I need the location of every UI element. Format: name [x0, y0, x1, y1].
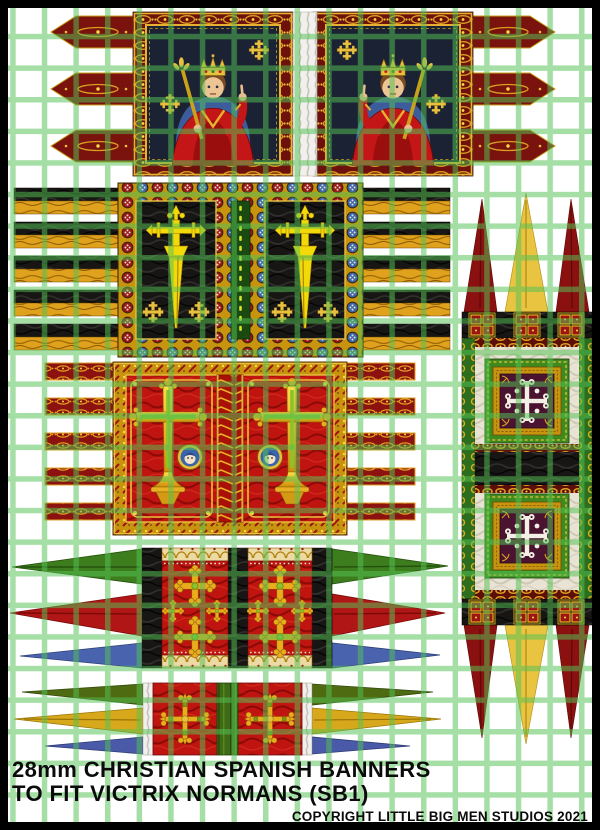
cutting-grid-overlay	[0, 0, 600, 830]
banner-sheet-art	[0, 0, 600, 830]
copyright-text: COPYRIGHT LITTLE BIG MEN STUDIOS 2021	[292, 809, 588, 824]
banner-sheet: 28mm CHRISTIAN SPANISH BANNERS TO FIT VI…	[0, 0, 600, 830]
sheet-title-line1: 28mm CHRISTIAN SPANISH BANNERS	[12, 757, 431, 783]
sheet-title-line2: TO FIT VICTRIX NORMANS (SB1)	[12, 781, 369, 807]
